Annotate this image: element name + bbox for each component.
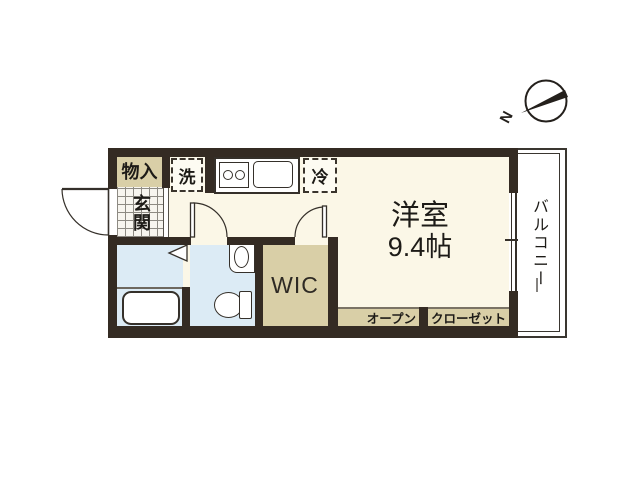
front-door-opening [108, 189, 117, 235]
main-room-name: 洋室 [391, 200, 449, 232]
fridge-label: 冷 [312, 163, 329, 188]
window-slider-pane [511, 193, 513, 291]
washer-space: 洗 [171, 158, 203, 192]
fridge-space: 冷 [303, 158, 337, 193]
storage-label: 物入 [117, 156, 162, 185]
entrance-label: 玄関 [119, 188, 163, 237]
wall [509, 148, 518, 193]
compass-north-label: N [497, 109, 517, 127]
balcony-label: バルコニー [518, 162, 558, 324]
wall [182, 287, 190, 326]
bathtub [122, 291, 180, 325]
stove-burner-left [223, 170, 233, 180]
bathroom-divider-line [117, 287, 183, 289]
wall [108, 326, 518, 338]
wall [108, 148, 117, 189]
washer-label: 洗 [179, 163, 196, 188]
wic-label: WIC [262, 245, 328, 326]
floorplan: 洗 冷 [0, 0, 640, 480]
kitchen-sink [253, 161, 293, 188]
compass-icon: N [497, 81, 568, 127]
open-closet-label: オープン [337, 308, 416, 326]
toilet-tank [239, 291, 252, 319]
front-door [62, 189, 109, 235]
wall [162, 148, 170, 188]
wall [205, 148, 214, 193]
wall [108, 235, 117, 338]
main-room-size: 9.4帖 [388, 232, 453, 262]
main-room-label: 洋室 9.4帖 [345, 197, 495, 265]
closet-strip-divider [419, 307, 428, 326]
stove-burner-right [235, 170, 245, 180]
hand-basin-bowl [234, 246, 249, 268]
window-slider-pane [515, 193, 517, 291]
closet-label: クローゼット [431, 308, 510, 326]
entrance-step-edge [163, 187, 169, 237]
wall [509, 291, 518, 338]
wall [108, 237, 191, 245]
